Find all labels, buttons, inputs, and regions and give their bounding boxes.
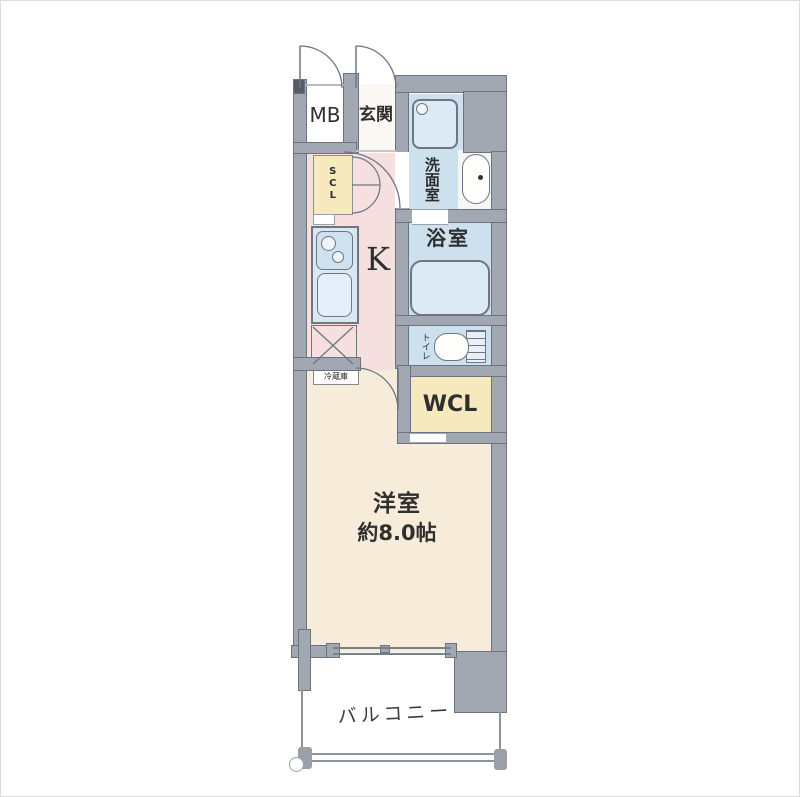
shoe-closet-label: SCL	[325, 158, 339, 210]
stove-burner-large	[321, 236, 336, 251]
entrance-step-line	[356, 150, 396, 152]
bathroom-door-opening	[412, 209, 448, 225]
wall-bottom-right-column	[455, 652, 506, 712]
wall-toilet-wcl	[398, 366, 506, 376]
wall-wcl-left	[398, 366, 410, 443]
wcl-door-opening	[410, 434, 446, 442]
wall-bath-toilet	[396, 316, 506, 325]
balcony-left-line	[301, 690, 303, 754]
balcony-post-right	[494, 749, 507, 770]
walk-in-closet-label: WCL	[414, 392, 486, 418]
vanity-sink-icon	[462, 154, 490, 204]
wall-top-right	[396, 76, 506, 92]
vanity-faucet-dot	[478, 175, 483, 180]
shoe-closet-base	[313, 214, 335, 225]
floor-plan: 冷蔵庫	[0, 0, 800, 797]
mb-opening-line	[306, 84, 344, 86]
entrance-label: 玄関	[353, 104, 399, 128]
kitchen-label: K	[362, 240, 394, 280]
wall-bottom-left-h	[292, 646, 332, 657]
toilet-label: トイレ	[418, 328, 430, 364]
toilet-tank-icon	[466, 330, 486, 363]
wall-mb-hinge	[294, 80, 304, 93]
bathtub-icon	[410, 260, 490, 316]
meter-box-label: MB	[304, 102, 346, 128]
entrance-door-arc	[356, 46, 396, 88]
window-line-outer	[333, 647, 451, 649]
kitchen-sink-icon	[317, 273, 352, 317]
toilet-bowl-icon	[434, 333, 469, 361]
balcony-railing-inner	[301, 760, 501, 762]
mb-door-arc	[300, 46, 342, 88]
window-cap-left	[327, 644, 339, 657]
window-line-inner	[333, 653, 451, 655]
wall-kitchen-bedroom	[294, 358, 360, 370]
balcony-drain-icon	[289, 757, 304, 772]
washroom-door-opening	[395, 152, 409, 208]
bathroom-label: 浴室	[412, 226, 484, 250]
window-cap-right	[446, 644, 456, 657]
wall-top-right-block	[464, 92, 506, 152]
wall-bottom-left-v	[299, 630, 310, 690]
balcony-label: バルコニー	[329, 699, 460, 732]
bedroom-label: 洋室	[347, 490, 447, 518]
wall-right-outer	[492, 152, 506, 655]
bedroom-size-label: 約8.0帖	[337, 520, 457, 546]
wall-mb-bottom	[294, 143, 356, 153]
stove-burner-small	[332, 251, 344, 263]
balcony-right-line	[499, 712, 501, 754]
washing-machine-drain-icon	[416, 103, 428, 115]
refrigerator-label-box: 冷蔵庫	[313, 370, 359, 385]
balcony-railing-outer	[301, 753, 501, 755]
washroom-label: 洗面室	[422, 148, 440, 210]
stove-icon	[316, 231, 353, 270]
